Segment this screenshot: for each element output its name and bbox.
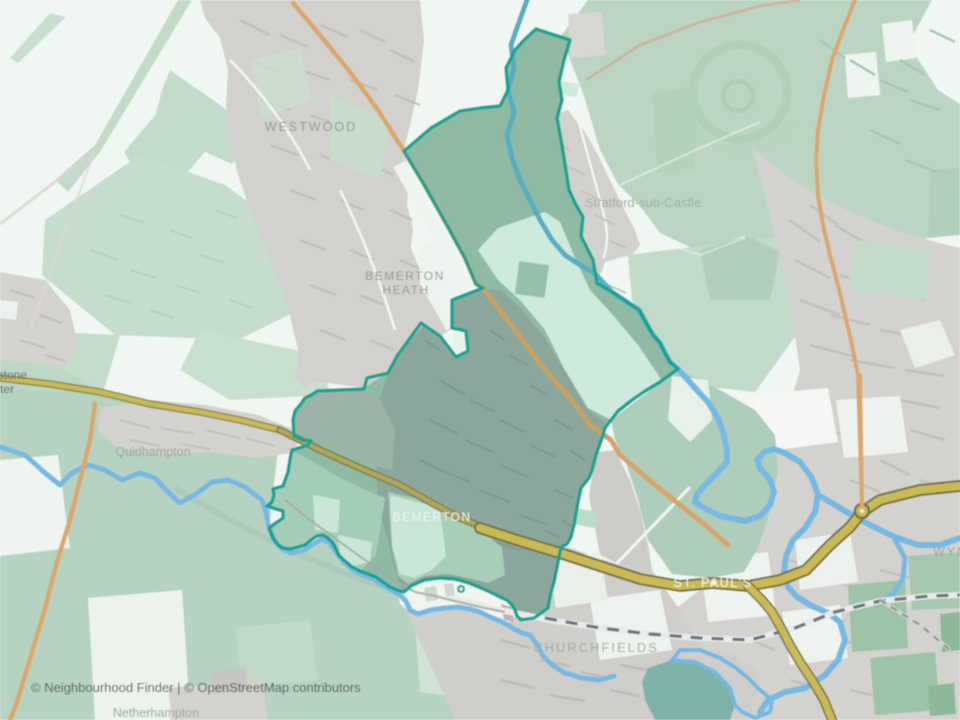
svg-text:CHURCHFIELDS: CHURCHFIELDS — [533, 640, 659, 655]
svg-text:HEATH: HEATH — [382, 283, 429, 297]
svg-text:ter: ter — [0, 382, 14, 396]
svg-text:Quidhampton: Quidhampton — [115, 445, 190, 459]
svg-text:stone: stone — [0, 368, 27, 382]
svg-text:WYN: WYN — [933, 545, 960, 559]
svg-text:© Neighbourhood Finder | © Ope: © Neighbourhood Finder | © OpenStreetMap… — [31, 680, 361, 695]
svg-text:ST. PAUL'S: ST. PAUL'S — [674, 576, 753, 590]
svg-text:BEMERTON: BEMERTON — [365, 269, 445, 283]
svg-text:WESTWOOD: WESTWOOD — [265, 120, 357, 134]
svg-text:Stratford-sub-Castle: Stratford-sub-Castle — [585, 195, 701, 210]
svg-text:BEMERTON: BEMERTON — [393, 510, 472, 524]
svg-text:Netherhampton: Netherhampton — [113, 706, 199, 720]
